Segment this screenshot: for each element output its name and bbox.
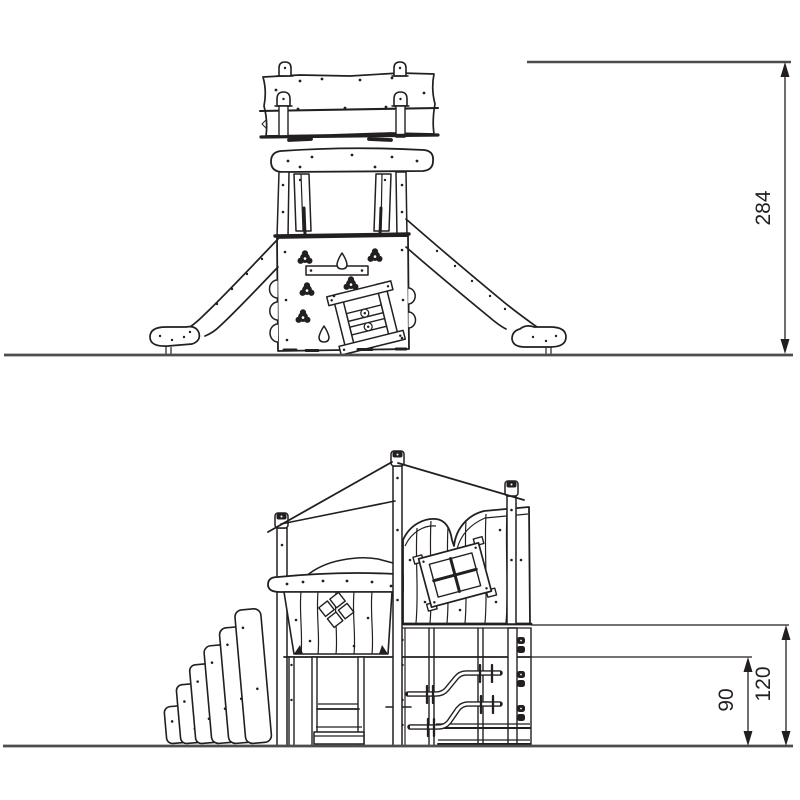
front-elevation-view: 284 <box>4 62 793 355</box>
cabin-frame <box>275 172 409 237</box>
roof-plank <box>271 148 433 172</box>
dimension-front-height: 284 <box>527 62 791 354</box>
arrowhead-down <box>781 339 790 354</box>
handrail-pipe-upper <box>408 665 500 703</box>
dimension-label-90: 90 <box>715 688 738 711</box>
technical-drawing-page: 284 <box>0 0 800 800</box>
upper-bar <box>261 135 438 140</box>
left-cladding-panel <box>284 592 392 654</box>
dimension-rail-height: 90 <box>531 657 753 746</box>
dimension-deck-height: 120 <box>531 625 791 746</box>
side-elevation-view: 120 90 <box>3 451 793 746</box>
middle-post <box>391 451 404 746</box>
right-post <box>505 481 518 624</box>
arrowhead-up <box>781 62 790 77</box>
arrowhead-down <box>744 731 753 746</box>
arrowhead-up <box>744 657 753 672</box>
left-post <box>275 513 288 746</box>
slide-exit-profile <box>314 704 364 744</box>
slide-left <box>150 239 278 354</box>
dimension-label-284: 284 <box>752 190 775 225</box>
column-knobs <box>517 637 525 721</box>
slide-right <box>406 219 566 354</box>
climbing-wall-panel <box>270 236 416 355</box>
arrowhead-up <box>782 625 791 640</box>
handrail-pipe-lower <box>410 696 500 736</box>
dimension-label-120: 120 <box>752 666 775 701</box>
stair-panels <box>164 608 272 744</box>
drawing-canvas: 284 <box>0 0 800 800</box>
arrowhead-down <box>782 731 791 746</box>
side-plank <box>268 573 403 592</box>
